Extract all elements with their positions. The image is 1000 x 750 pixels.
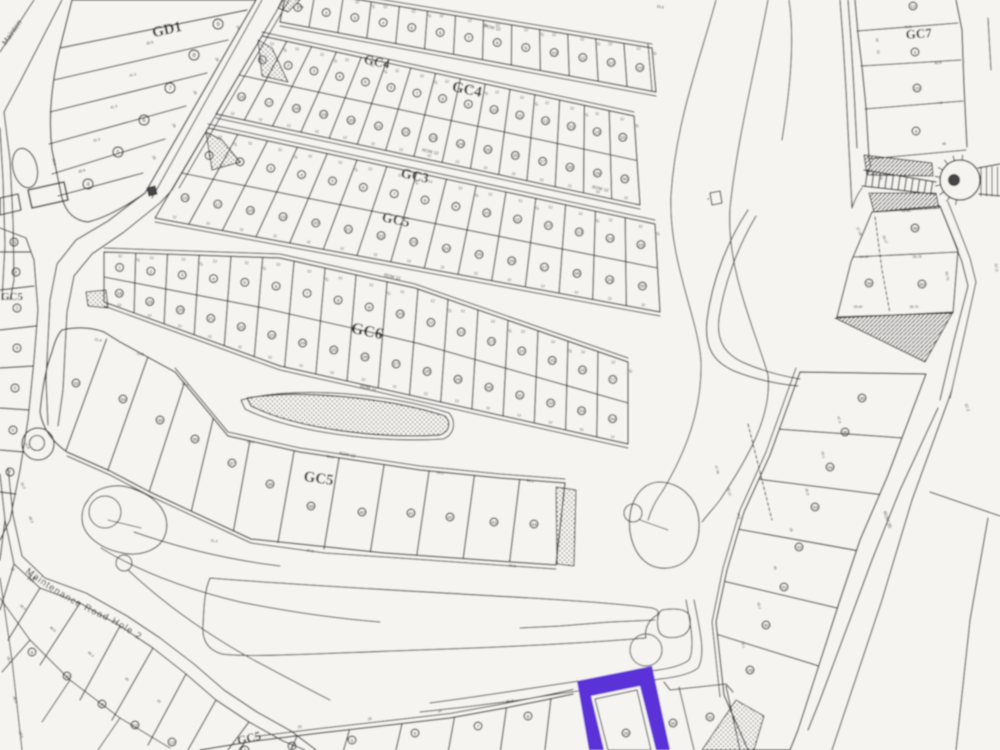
svg-text:12: 12	[454, 399, 459, 404]
svg-text:21: 21	[346, 227, 352, 233]
svg-text:27: 27	[542, 265, 548, 271]
svg-text:26: 26	[362, 355, 368, 361]
svg-text:24: 24	[458, 141, 464, 147]
svg-text:12: 12	[117, 303, 122, 308]
svg-text:18: 18	[117, 291, 123, 297]
svg-text:12: 12	[373, 252, 378, 257]
svg-text:15: 15	[620, 135, 626, 141]
svg-text:12: 12	[460, 309, 465, 314]
svg-text:45.9: 45.9	[934, 61, 941, 65]
svg-text:7: 7	[306, 291, 309, 297]
svg-text:12: 12	[458, 186, 463, 191]
svg-text:10: 10	[64, 674, 70, 680]
svg-text:12: 12	[608, 42, 613, 47]
svg-text:11: 11	[580, 55, 585, 61]
svg-text:10: 10	[397, 312, 403, 318]
svg-text:25.40: 25.40	[854, 305, 863, 309]
svg-text:12: 12	[238, 345, 243, 350]
svg-text:26: 26	[513, 153, 519, 159]
svg-text:8: 8	[192, 53, 195, 59]
svg-text:12: 12	[172, 215, 177, 220]
svg-text:14: 14	[594, 130, 600, 136]
svg-text:43: 43	[491, 520, 497, 526]
svg-text:6: 6	[439, 30, 442, 36]
svg-text:12: 12	[439, 14, 444, 19]
svg-text:10: 10	[551, 50, 557, 56]
svg-text:6: 6	[390, 85, 393, 91]
svg-text:41: 41	[408, 511, 414, 517]
svg-text:22: 22	[239, 324, 245, 330]
svg-text:20: 20	[368, 717, 373, 722]
svg-text:12: 12	[523, 28, 528, 33]
svg-text:6: 6	[12, 428, 15, 434]
svg-text:12: 12	[578, 211, 583, 216]
svg-text:4.6: 4.6	[937, 101, 942, 105]
svg-text:12: 12	[147, 313, 152, 318]
svg-text:12: 12	[540, 284, 545, 289]
svg-text:12: 12	[400, 290, 405, 295]
svg-text:23: 23	[430, 136, 436, 142]
svg-text:24: 24	[444, 246, 450, 252]
svg-text:12: 12	[548, 205, 553, 210]
svg-text:15: 15	[549, 358, 555, 364]
svg-text:12: 12	[624, 196, 629, 201]
svg-text:12: 12	[552, 32, 557, 37]
svg-text:4: 4	[16, 346, 19, 352]
svg-text:29: 29	[607, 277, 613, 283]
svg-text:9: 9	[524, 45, 527, 51]
svg-text:14.00: 14.00	[860, 255, 869, 259]
svg-text:5: 5	[351, 738, 354, 744]
svg-text:12: 12	[299, 363, 304, 368]
svg-text:5: 5	[243, 280, 246, 286]
svg-text:12: 12	[641, 303, 646, 308]
svg-text:12: 12	[495, 90, 500, 95]
svg-text:12: 12	[269, 42, 274, 47]
svg-text:20: 20	[438, 709, 443, 714]
svg-text:6: 6	[414, 731, 417, 737]
svg-text:12: 12	[579, 427, 584, 432]
svg-text:5: 5	[116, 150, 119, 156]
svg-text:12: 12	[338, 160, 343, 165]
svg-text:12: 12	[314, 129, 319, 134]
svg-text:12: 12	[440, 265, 445, 270]
svg-text:48: 48	[942, 142, 946, 146]
svg-text:3: 3	[269, 166, 272, 172]
svg-text:12: 12	[517, 413, 522, 418]
svg-text:3: 3	[313, 69, 316, 75]
svg-text:12: 12	[539, 178, 544, 183]
svg-text:4: 4	[915, 129, 918, 135]
svg-text:7: 7	[416, 91, 419, 97]
svg-text:12: 12	[395, 68, 400, 73]
svg-text:13: 13	[569, 124, 575, 130]
svg-text:12: 12	[473, 271, 478, 276]
svg-text:39: 39	[866, 281, 872, 287]
svg-text:19: 19	[321, 112, 327, 118]
svg-text:11: 11	[517, 113, 522, 119]
svg-text:12: 12	[407, 259, 412, 264]
svg-text:12: 12	[368, 167, 373, 172]
svg-text:13: 13	[169, 740, 175, 746]
svg-text:32: 32	[548, 401, 554, 407]
svg-text:12: 12	[458, 330, 464, 336]
svg-text:16: 16	[182, 196, 188, 202]
svg-text:20: 20	[298, 725, 303, 730]
svg-text:12: 12	[423, 391, 428, 396]
svg-text:44: 44	[531, 522, 537, 528]
svg-text:7: 7	[393, 191, 396, 197]
svg-text:4: 4	[86, 182, 89, 188]
svg-text:34: 34	[827, 465, 833, 471]
svg-text:4: 4	[300, 172, 303, 178]
svg-text:7: 7	[168, 86, 171, 92]
svg-text:12: 12	[570, 106, 575, 111]
svg-text:14: 14	[607, 236, 613, 242]
svg-text:16: 16	[875, 38, 879, 42]
svg-text:12: 12	[177, 324, 182, 329]
svg-text:30: 30	[486, 385, 492, 391]
svg-text:12: 12	[258, 117, 263, 122]
svg-text:2: 2	[150, 269, 153, 275]
svg-text:12: 12	[383, 5, 388, 10]
svg-text:12: 12	[467, 18, 472, 23]
svg-text:5: 5	[14, 386, 17, 392]
svg-text:28: 28	[567, 165, 573, 171]
svg-text:40: 40	[359, 510, 365, 516]
svg-text:12: 12	[486, 406, 491, 411]
svg-text:5: 5	[410, 25, 413, 31]
svg-text:12: 12	[181, 257, 186, 262]
svg-text:12: 12	[330, 370, 335, 375]
svg-text:12: 12	[543, 118, 549, 124]
svg-text:29: 29	[747, 668, 753, 674]
svg-text:5: 5	[364, 80, 367, 86]
svg-text:12: 12	[490, 319, 495, 324]
svg-text:4: 4	[291, 744, 294, 750]
svg-text:30: 30	[622, 177, 628, 183]
svg-text:11: 11	[428, 320, 433, 326]
svg-text:3: 3	[353, 15, 356, 21]
svg-text:2: 2	[287, 63, 290, 69]
svg-text:12: 12	[306, 240, 311, 245]
svg-text:12: 12	[548, 420, 553, 425]
svg-text:20: 20	[178, 308, 184, 314]
svg-text:12: 12	[206, 221, 211, 226]
svg-text:12: 12	[307, 269, 312, 274]
svg-text:11: 11	[99, 702, 104, 708]
svg-text:12: 12	[611, 360, 616, 365]
svg-text:12: 12	[276, 262, 281, 267]
svg-text:14: 14	[519, 349, 525, 355]
svg-text:12: 12	[455, 160, 460, 165]
svg-text:13: 13	[489, 339, 495, 345]
svg-text:12: 12	[273, 234, 278, 239]
svg-text:23: 23	[411, 240, 417, 246]
svg-text:12: 12	[574, 290, 579, 295]
svg-text:19: 19	[280, 214, 286, 220]
svg-text:21: 21	[208, 316, 214, 322]
svg-text:12: 12	[268, 355, 273, 360]
svg-text:38: 38	[267, 482, 273, 488]
svg-text:12: 12	[207, 334, 212, 339]
svg-text:20: 20	[348, 118, 354, 124]
svg-text:12: 12	[607, 296, 612, 301]
svg-text:12: 12	[608, 218, 613, 223]
svg-text:12: 12	[295, 47, 300, 52]
svg-text:8: 8	[496, 40, 499, 46]
svg-text:12: 12	[581, 350, 586, 355]
svg-text:22: 22	[403, 130, 409, 136]
svg-text:12: 12	[399, 147, 404, 152]
svg-text:17: 17	[266, 100, 272, 106]
svg-text:21: 21	[11, 240, 17, 246]
svg-text:9: 9	[368, 305, 371, 311]
svg-text:3: 3	[181, 273, 184, 279]
svg-text:26: 26	[509, 259, 515, 265]
svg-text:17: 17	[610, 377, 616, 383]
svg-text:4: 4	[382, 20, 385, 26]
svg-text:3: 3	[16, 306, 19, 312]
svg-text:12: 12	[567, 184, 572, 189]
svg-text:8: 8	[441, 96, 444, 102]
svg-text:33: 33	[579, 409, 585, 415]
svg-text:39: 39	[308, 504, 314, 510]
svg-text:12: 12	[212, 259, 217, 264]
svg-text:25: 25	[331, 348, 337, 354]
svg-text:37: 37	[229, 461, 235, 467]
svg-text:38: 38	[912, 226, 918, 232]
svg-text:18: 18	[248, 208, 254, 214]
svg-text:12: 12	[392, 384, 397, 389]
svg-text:12: 12	[610, 434, 615, 439]
svg-text:9: 9	[31, 650, 34, 656]
svg-text:12: 12	[340, 246, 345, 251]
svg-text:22: 22	[378, 233, 384, 239]
svg-text:15: 15	[638, 242, 644, 248]
svg-text:29: 29	[595, 171, 601, 177]
svg-text:36: 36	[859, 396, 865, 402]
svg-text:12: 12	[278, 148, 283, 153]
svg-text:28: 28	[574, 271, 580, 277]
svg-text:15: 15	[876, 50, 880, 54]
svg-text:12: 12	[595, 111, 600, 116]
svg-text:8: 8	[424, 198, 427, 204]
svg-text:5: 5	[331, 179, 334, 185]
svg-text:3: 3	[914, 50, 917, 56]
svg-text:6: 6	[362, 185, 365, 191]
svg-text:16: 16	[239, 94, 245, 100]
svg-text:31: 31	[517, 393, 523, 399]
svg-text:31: 31	[781, 585, 787, 591]
svg-text:11: 11	[515, 217, 520, 223]
svg-text:12: 12	[286, 123, 291, 128]
svg-text:25: 25	[476, 252, 482, 258]
svg-text:12: 12	[620, 117, 625, 122]
svg-text:36: 36	[192, 437, 198, 443]
svg-text:4: 4	[338, 74, 341, 80]
svg-text:12: 12	[511, 172, 516, 177]
svg-text:12: 12	[608, 60, 614, 66]
svg-text:34: 34	[120, 397, 126, 403]
svg-text:29: 29	[455, 377, 461, 383]
svg-text:9: 9	[467, 102, 470, 108]
svg-text:20: 20	[313, 221, 319, 227]
svg-text:12: 12	[483, 166, 488, 171]
svg-text:13: 13	[637, 65, 643, 71]
svg-text:35: 35	[157, 418, 163, 424]
svg-text:1: 1	[118, 265, 121, 271]
svg-text:23: 23	[269, 333, 275, 339]
svg-text:GC5: GC5	[1, 291, 24, 303]
svg-text:13: 13	[576, 230, 582, 236]
svg-text:33: 33	[73, 381, 79, 387]
svg-text:6: 6	[275, 284, 278, 290]
svg-text:12: 12	[420, 74, 425, 79]
svg-text:46.2: 46.2	[904, 25, 911, 29]
svg-text:25: 25	[485, 147, 491, 153]
svg-text:27: 27	[540, 159, 546, 165]
svg-text:26.70: 26.70	[910, 305, 919, 309]
svg-text:40: 40	[919, 282, 925, 288]
svg-text:12: 12	[520, 329, 525, 334]
svg-text:16: 16	[580, 368, 586, 374]
svg-text:26.75: 26.75	[913, 255, 922, 259]
svg-text:12: 12	[910, 4, 916, 10]
svg-text:12: 12	[428, 179, 433, 184]
svg-text:12: 12	[239, 227, 244, 232]
svg-text:12: 12	[230, 111, 235, 116]
svg-text:12: 12	[132, 723, 138, 729]
svg-text:26.45: 26.45	[902, 209, 911, 213]
svg-text:21: 21	[376, 124, 382, 130]
svg-text:12: 12	[343, 135, 348, 140]
svg-text:12: 12	[520, 95, 525, 100]
svg-text:2: 2	[15, 270, 18, 276]
svg-text:42: 42	[447, 515, 453, 521]
svg-text:12: 12	[369, 283, 374, 288]
svg-text:18: 18	[294, 106, 300, 112]
svg-text:10: 10	[484, 211, 490, 217]
svg-text:35: 35	[842, 430, 848, 436]
svg-text:12: 12	[118, 254, 123, 259]
svg-text:9: 9	[455, 204, 458, 210]
svg-text:6: 6	[142, 118, 145, 124]
svg-text:2: 2	[325, 10, 328, 16]
svg-text:12: 12	[551, 340, 556, 345]
svg-text:33: 33	[812, 505, 818, 511]
svg-text:9: 9	[216, 22, 219, 28]
svg-text:28: 28	[424, 369, 430, 375]
svg-text:4: 4	[212, 276, 215, 282]
svg-text:12: 12	[308, 154, 313, 159]
svg-text:12: 12	[320, 52, 325, 57]
svg-text:12: 12	[636, 46, 641, 51]
svg-text:10: 10	[491, 107, 497, 113]
svg-text:12: 12	[546, 223, 552, 229]
svg-text:12: 12	[361, 377, 366, 382]
svg-text:30: 30	[670, 721, 676, 727]
svg-text:12: 12	[371, 141, 376, 146]
svg-text:27: 27	[393, 362, 399, 368]
svg-text:12: 12	[507, 278, 512, 283]
svg-text:7: 7	[467, 35, 470, 41]
svg-text:7: 7	[477, 724, 480, 730]
svg-text:29: 29	[623, 731, 629, 737]
svg-text:12: 12	[338, 276, 343, 281]
svg-text:30: 30	[763, 623, 769, 629]
svg-text:12: 12	[638, 224, 643, 229]
svg-text:19: 19	[147, 299, 153, 305]
svg-text:31: 31	[707, 715, 713, 721]
svg-text:12: 12	[488, 192, 493, 197]
svg-text:17: 17	[215, 202, 221, 208]
svg-text:24: 24	[300, 341, 306, 347]
svg-text:30: 30	[640, 284, 646, 290]
svg-text:32: 32	[796, 545, 802, 551]
svg-text:8: 8	[337, 298, 340, 304]
svg-text:8: 8	[527, 714, 530, 720]
svg-text:23: 23	[914, 86, 920, 92]
svg-text:34: 34	[610, 417, 616, 423]
